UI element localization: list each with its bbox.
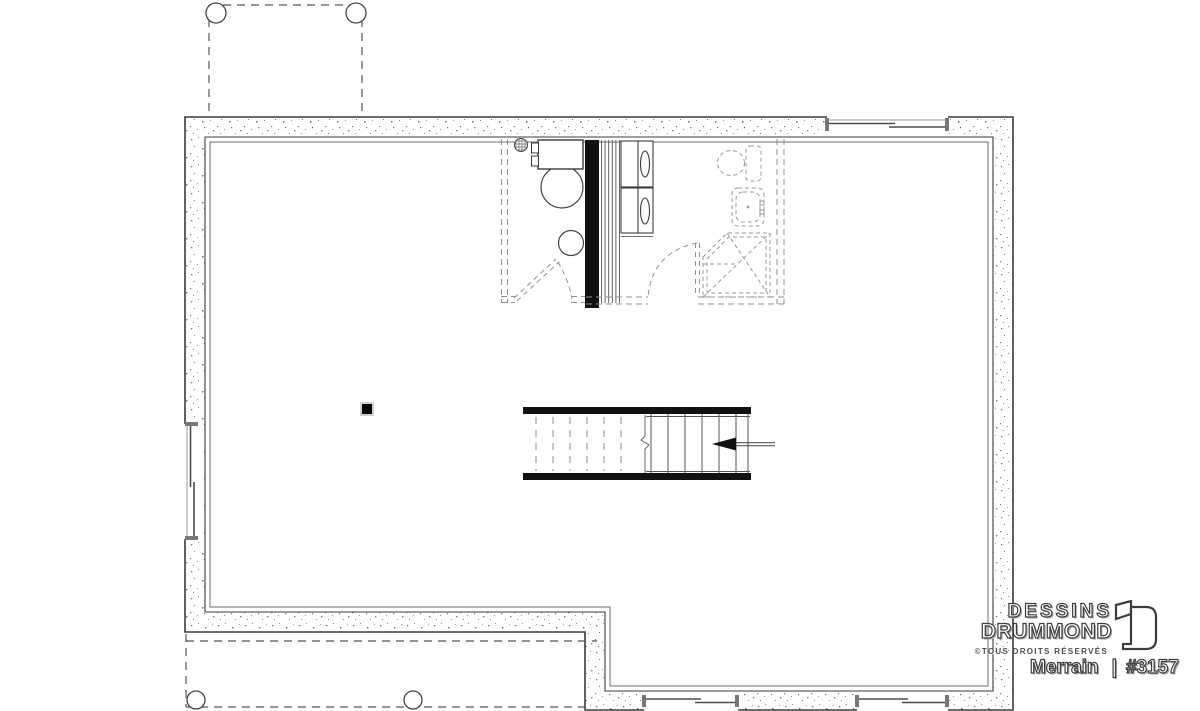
porch-post-icons-bottom [187, 691, 422, 709]
stair-direction-arrow [712, 438, 775, 451]
bathroom-door-swing [648, 243, 700, 297]
floor-plan-page: DESSINS DRUMMOND ©TOUS DROITS RÉSERVÉS M… [0, 0, 1200, 711]
plan-title-separator: | [1112, 658, 1117, 677]
branding-block: DESSINS DRUMMOND ©TOUS DROITS RÉSERVÉS M… [900, 598, 1200, 711]
copyright-text: ©TOUS DROITS RÉSERVÉS [975, 647, 1108, 656]
corner-shower-icon [703, 233, 770, 297]
structural-post [360, 402, 374, 416]
mechanical-room-door-swing [514, 259, 572, 301]
brand-name-line1: DESSINS [1008, 602, 1112, 621]
toilet-icon [718, 146, 762, 181]
upper-porch-outline [209, 5, 362, 116]
stairs-upper-flight [602, 140, 620, 303]
window-top [825, 115, 949, 136]
porch-post-icons-top [206, 3, 366, 23]
plan-number: #3157 [1126, 658, 1179, 677]
furnace-icon [532, 140, 584, 208]
water-heater-icon [559, 231, 584, 256]
brand-name-line2: DRUMMOND [981, 621, 1112, 642]
dryer-icon [621, 188, 653, 237]
bathroom-sink-icon [732, 188, 764, 226]
stair-bearing-wall [585, 140, 599, 308]
floor-drain-icon [514, 138, 528, 152]
plan-title: Merrain | #3157 [1030, 658, 1179, 677]
washer-icon [621, 141, 653, 187]
window-bottom-left [642, 693, 739, 711]
window-left [183, 422, 204, 540]
plan-name: Merrain [1030, 658, 1099, 677]
lower-porch-outline [186, 634, 597, 707]
